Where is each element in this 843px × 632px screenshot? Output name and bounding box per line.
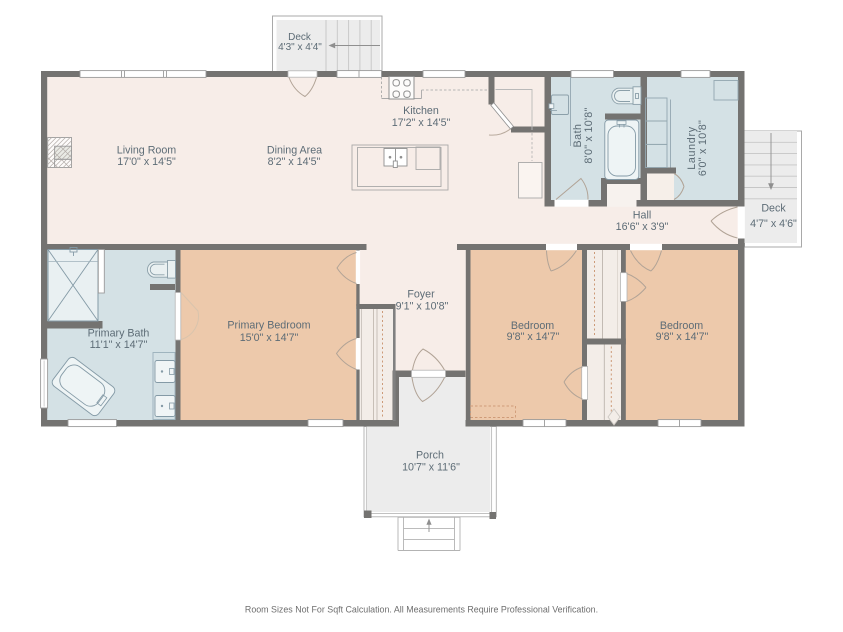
svg-text:11'1" x 14'7": 11'1" x 14'7" (90, 339, 148, 351)
svg-text:10'7" x 11'6": 10'7" x 11'6" (402, 462, 460, 474)
svg-text:Foyer: Foyer (407, 289, 435, 301)
svg-text:8'2" x 14'5": 8'2" x 14'5" (268, 156, 321, 168)
svg-text:Primary Bedroom: Primary Bedroom (227, 320, 310, 332)
svg-text:Hall: Hall (633, 210, 651, 222)
svg-text:4'3" x 4'4": 4'3" x 4'4" (278, 42, 322, 53)
svg-text:17'2" x 14'5": 17'2" x 14'5" (392, 117, 451, 129)
svg-text:16'6" x 3'9": 16'6" x 3'9" (616, 221, 669, 233)
svg-text:4'7" x 4'6": 4'7" x 4'6" (750, 218, 797, 230)
svg-text:Living Room: Living Room (117, 145, 176, 157)
svg-text:9'1" x 10'8": 9'1" x 10'8" (396, 301, 449, 313)
svg-text:9'8" x 14'7": 9'8" x 14'7" (507, 331, 560, 343)
svg-text:Porch: Porch (416, 450, 444, 462)
svg-text:Kitchen: Kitchen (403, 105, 439, 117)
svg-text:6'0" x 10'8": 6'0" x 10'8" (697, 120, 709, 176)
svg-text:Room Sizes Not For Sqft Calcul: Room Sizes Not For Sqft Calculation. All… (245, 605, 598, 615)
svg-text:8'0" x 10'8": 8'0" x 10'8" (583, 107, 595, 163)
svg-text:9'8" x 14'7": 9'8" x 14'7" (656, 331, 709, 343)
svg-text:Dining Area: Dining Area (267, 145, 322, 157)
svg-text:15'0" x 14'7": 15'0" x 14'7" (240, 332, 299, 344)
svg-text:Primary Bath: Primary Bath (88, 328, 150, 340)
svg-text:17'0" x 14'5": 17'0" x 14'5" (117, 156, 176, 168)
svg-text:Deck: Deck (761, 203, 786, 215)
